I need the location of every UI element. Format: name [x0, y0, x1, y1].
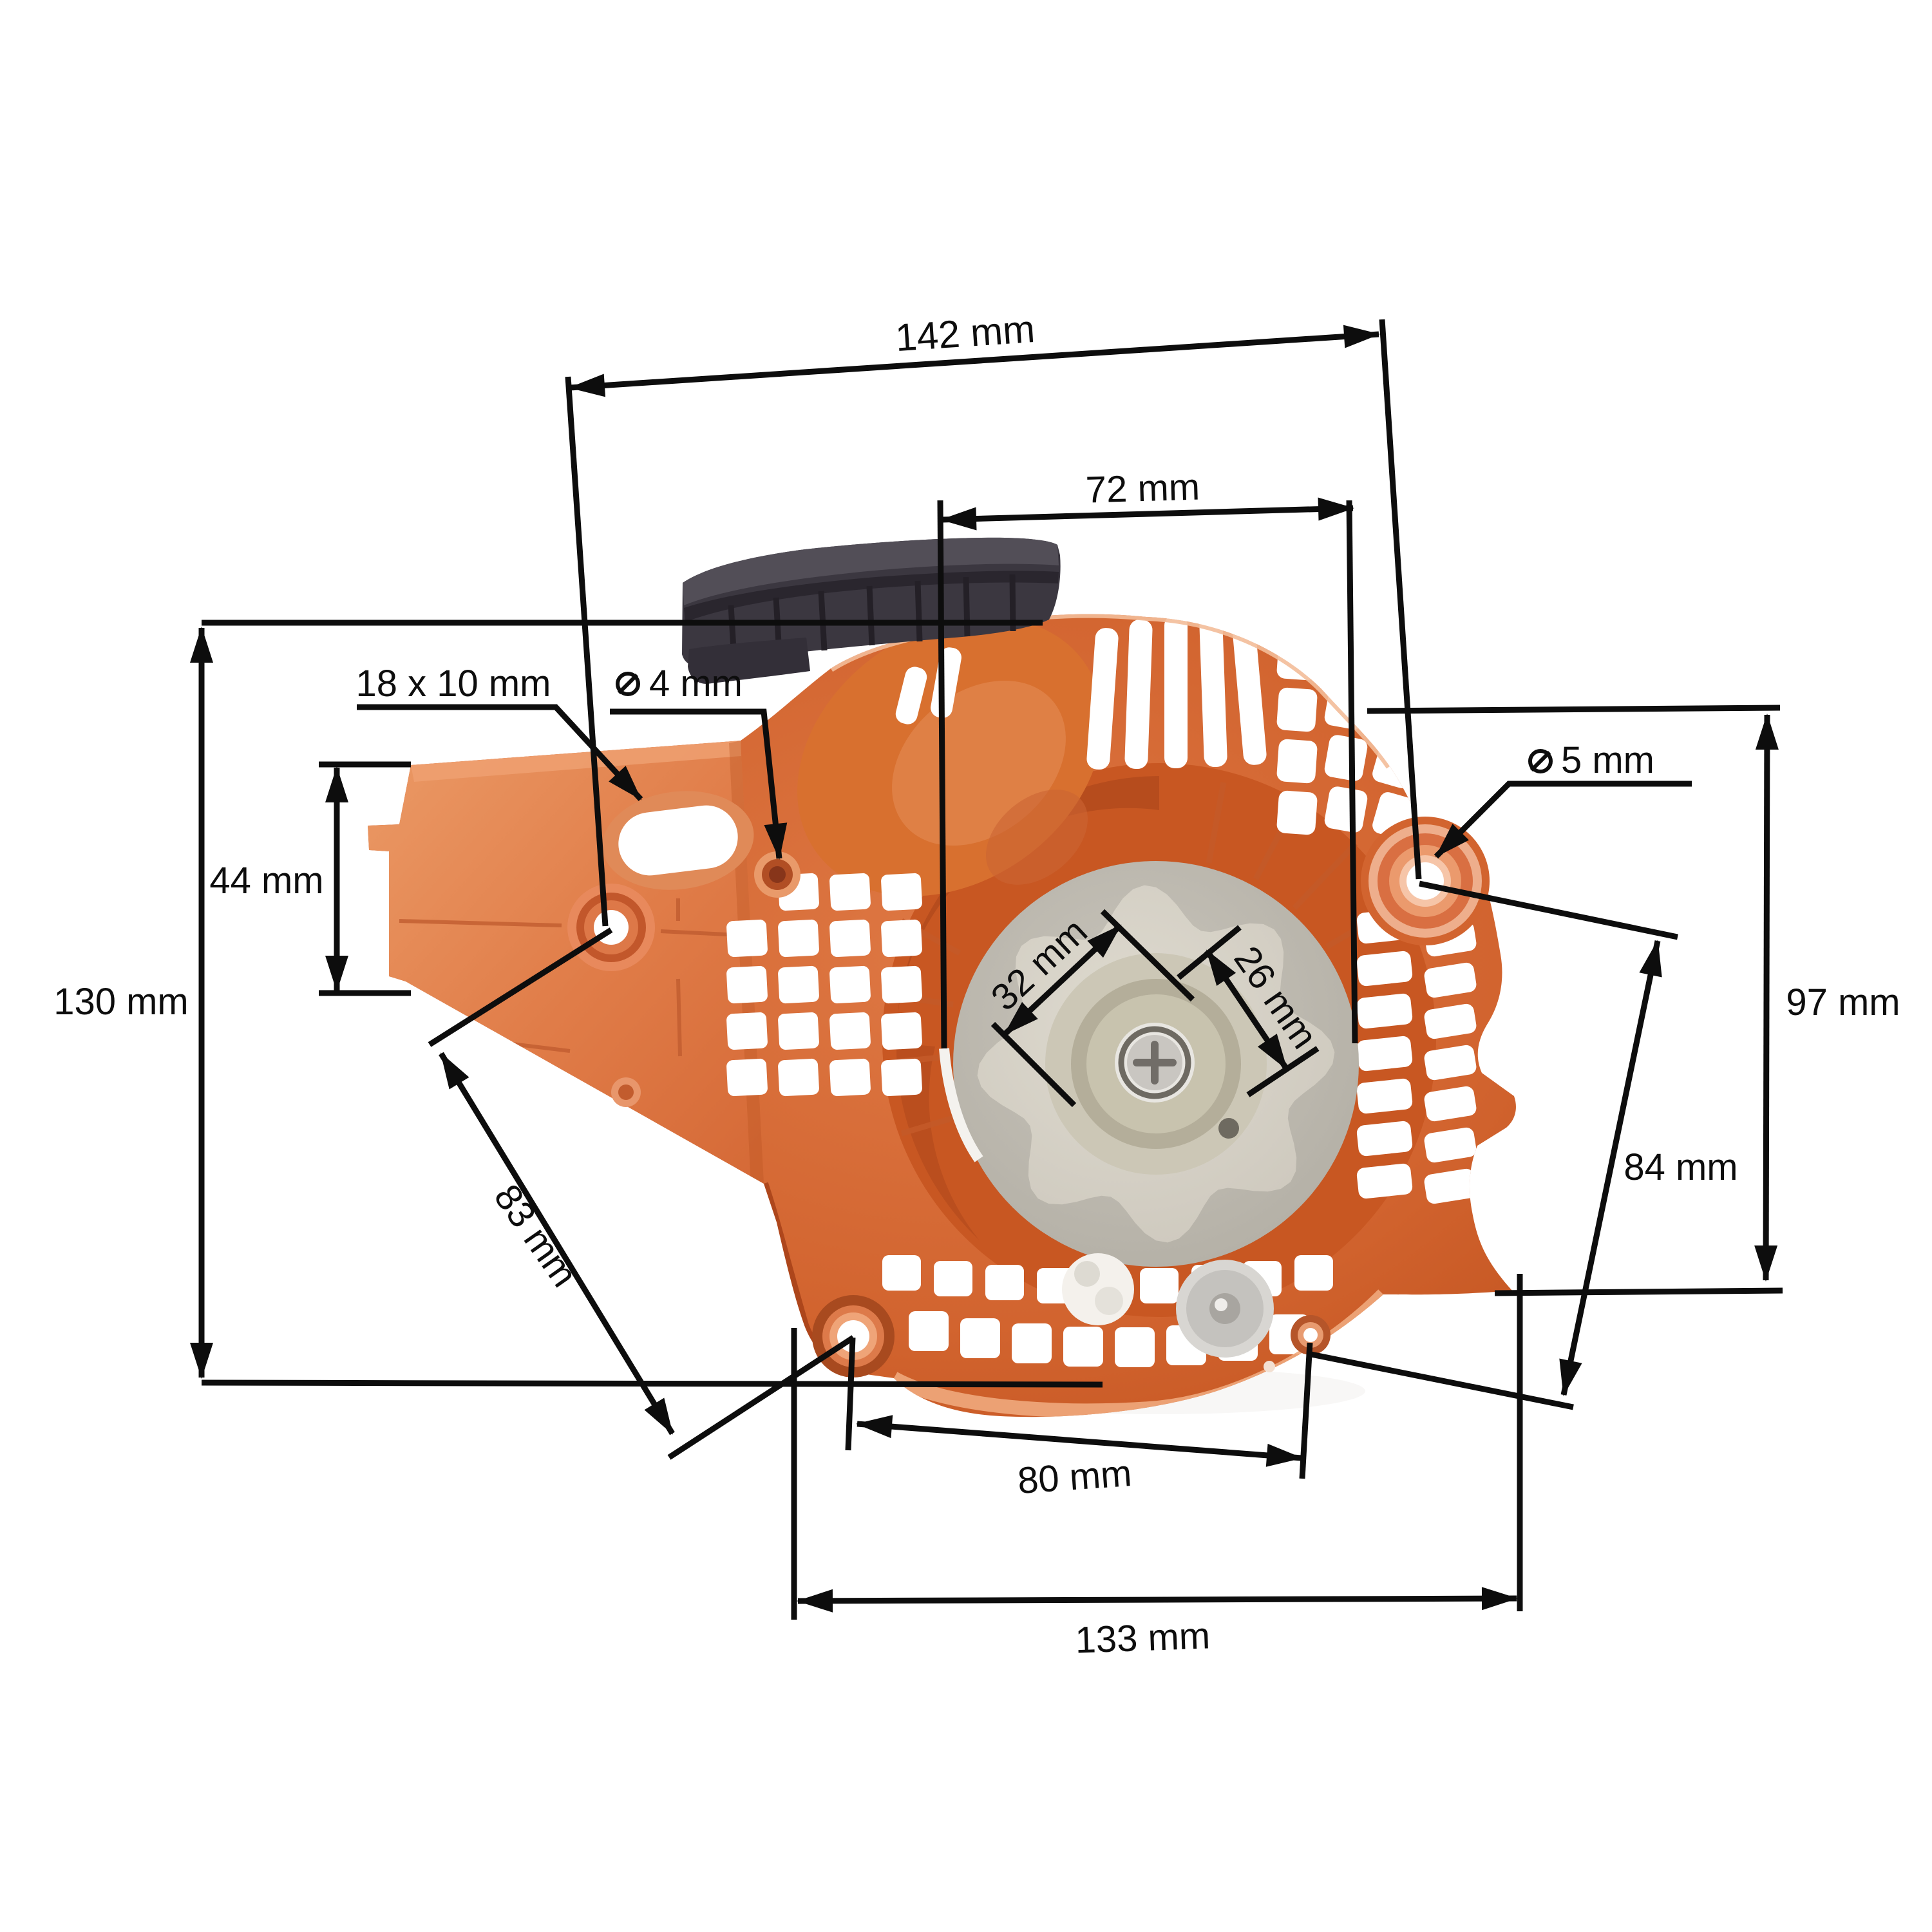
svg-text:5 mm: 5 mm: [1561, 739, 1654, 781]
svg-text:18 x 10 mm: 18 x 10 mm: [356, 663, 551, 705]
svg-text:72 mm: 72 mm: [1085, 466, 1200, 511]
svg-text:142 mm: 142 mm: [894, 307, 1036, 359]
svg-text:80 mm: 80 mm: [1016, 1452, 1133, 1502]
svg-text:44 mm: 44 mm: [209, 860, 323, 902]
svg-text:133 mm: 133 mm: [1074, 1615, 1211, 1661]
svg-text:97 mm: 97 mm: [1786, 981, 1900, 1023]
svg-text:130 mm: 130 mm: [53, 981, 189, 1023]
svg-text:4 mm: 4 mm: [649, 663, 743, 705]
svg-text:84 mm: 84 mm: [1624, 1146, 1738, 1188]
